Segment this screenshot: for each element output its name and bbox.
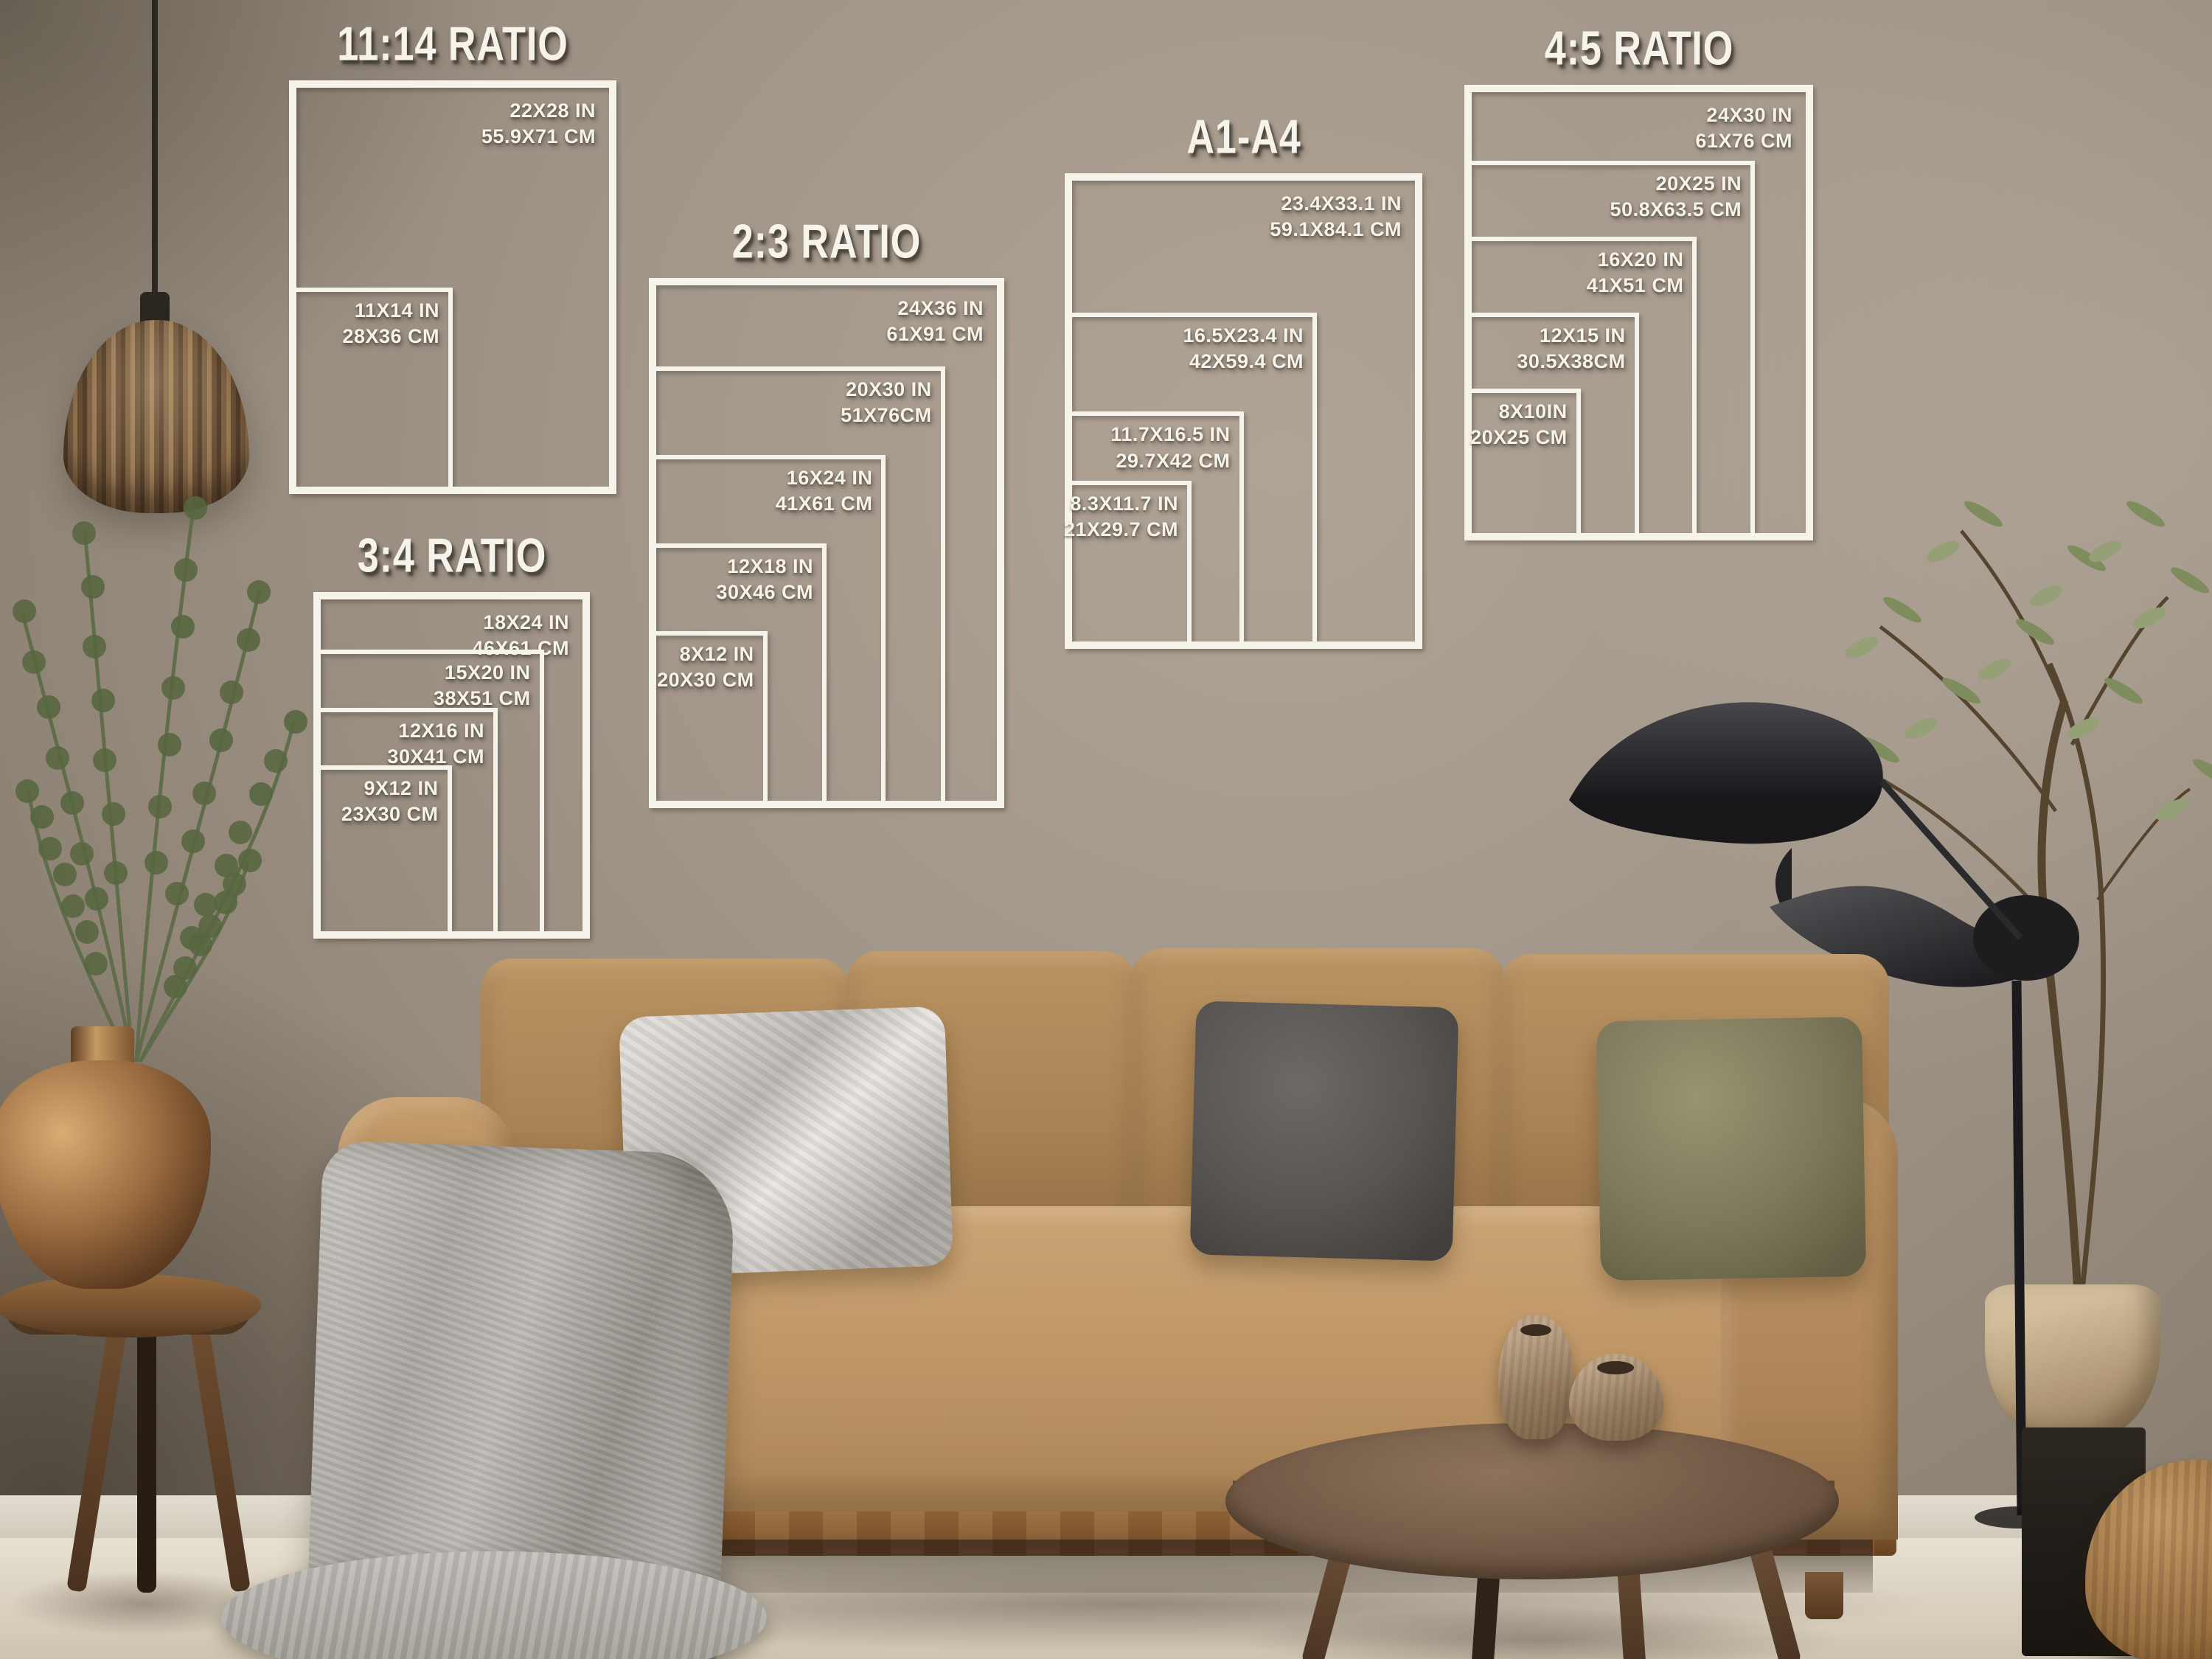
size-label: 11X14 IN28X36 CM — [342, 298, 439, 349]
size-guide-a1-a4: A1-A423.4X33.1 IN59.1X84.1 CM16.5X23.4 I… — [1065, 173, 1422, 649]
size-guide-ratio-11-14: 11:14 RATIO22X28 IN55.9X71 CM11X14 IN28X… — [289, 80, 616, 494]
vase-mouth — [1520, 1324, 1551, 1336]
size-label: 12X15 IN30.5X38CM — [1517, 323, 1625, 375]
size-label: 23.4X33.1 IN59.1X84.1 CM — [1270, 191, 1402, 243]
size-guide-title: 3:4 RATIO — [347, 531, 557, 580]
size-frame: 8X10IN20X25 CM — [1464, 389, 1581, 540]
size-guide-ratio-2-3: 2:3 RATIO24X36 IN61X91 CM20X30 IN51X76CM… — [649, 278, 1004, 808]
size-label: 20X25 IN50.8X63.5 CM — [1610, 171, 1742, 223]
size-frame: 8.3X11.7 IN21X29.7 CM — [1065, 481, 1192, 649]
size-frame: 11X14 IN28X36 CM — [289, 288, 453, 495]
size-guide-ratio-4-5: 4:5 RATIO24X30 IN61X76 CM20X25 IN50.8X63… — [1464, 85, 1813, 540]
size-label: 15X20 IN38X51 CM — [434, 660, 531, 712]
pillow-olive — [1596, 1017, 1866, 1281]
size-label: 12X16 IN30X41 CM — [387, 718, 484, 770]
size-label: 24X30 IN61X76 CM — [1695, 102, 1792, 154]
size-label: 16X20 IN41X51 CM — [1587, 247, 1684, 299]
size-label: 20X30 IN51X76CM — [841, 377, 932, 428]
table-top — [1225, 1423, 1839, 1579]
size-guide-ratio-3-4: 3:4 RATIO18X24 IN46X61 CM15X20 IN38X51 C… — [313, 592, 590, 939]
size-label: 8X10IN20X25 CM — [1470, 399, 1568, 451]
size-frame: 9X12 IN23X30 CM — [313, 765, 452, 939]
size-guide-title: 4:5 RATIO — [1534, 24, 1744, 73]
size-guide-title: A1-A4 — [1180, 112, 1307, 161]
stool-leg — [137, 1330, 156, 1593]
size-frame: 8X12 IN20X30 CM — [649, 631, 768, 808]
size-label: 9X12 IN23X30 CM — [341, 776, 439, 827]
size-label: 12X18 IN30X46 CM — [716, 554, 813, 605]
couch-leg — [1805, 1572, 1843, 1619]
size-label: 8X12 IN20X30 CM — [657, 641, 754, 693]
size-label: 16.5X23.4 IN42X59.4 CM — [1183, 323, 1304, 375]
size-guide-title: 11:14 RATIO — [324, 19, 581, 69]
eucalyptus-plant-left — [0, 472, 317, 1077]
vase-mouth — [1597, 1361, 1634, 1374]
size-label: 24X36 IN61X91 CM — [886, 296, 984, 347]
pillow-charcoal — [1190, 1001, 1459, 1261]
size-label: 16X24 IN41X61 CM — [776, 465, 873, 517]
size-label: 11.7X16.5 IN29.7X42 CM — [1110, 422, 1230, 473]
size-label: 8.3X11.7 IN21X29.7 CM — [1064, 491, 1178, 543]
size-label: 22X28 IN55.9X71 CM — [481, 98, 596, 150]
pendant-lamp-cord — [152, 0, 158, 324]
size-guide-title: 2:3 RATIO — [721, 217, 931, 266]
living-room-size-guide-scene: 11:14 RATIO22X28 IN55.9X71 CM11X14 IN28X… — [0, 0, 2212, 1659]
